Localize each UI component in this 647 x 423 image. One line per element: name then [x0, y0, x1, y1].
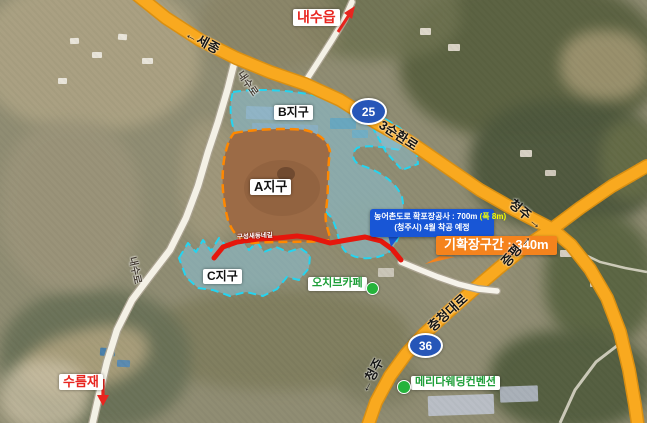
poi-label-merida-wedding: 메리다웨딩컨벤션 [411, 376, 500, 390]
zone-label-c: C지구 [203, 269, 242, 284]
zone-label-b: B지구 [274, 105, 313, 120]
construction-text: 농어촌도로 확포장공사 : 700m [374, 212, 477, 221]
construction-width-note: (폭 8m) [480, 212, 506, 221]
construction-callout-line1: 농어촌도로 확포장공사 : 700m (폭 8m) [374, 212, 490, 223]
poi-label-ochiv-cafe: 오치브카페 [308, 277, 367, 291]
poi-dot-merida-wedding [397, 380, 411, 394]
zone-c-area [179, 237, 310, 296]
road-naesu-ro-casing [92, 56, 236, 423]
widened-section-callout: 기확장구간 : 340m [436, 236, 557, 255]
satellite-map: 내수읍 ←세종 내수로 25 3순환로 B지구 A지구 C지구 구성새동네길 농… [0, 0, 647, 423]
road-minor-bottom-right [560, 345, 618, 423]
poi-dot-ochiv-cafe [366, 282, 379, 295]
construction-callout-line2: (청주시) 4월 착공 예정 [374, 223, 490, 234]
construction-callout: 농어촌도로 확포장공사 : 700m (폭 8m) (청주시) 4월 착공 예정 [370, 209, 494, 237]
map-overlay-svg [0, 0, 647, 423]
road-naesu-ro-path [92, 56, 236, 423]
route-badge-36: 36 [408, 333, 443, 358]
zone-label-a: A지구 [250, 179, 291, 195]
destination-label-naesu-eup: 내수읍 [293, 9, 340, 26]
destination-label-sureumjae: 수름재 [59, 374, 103, 390]
widened-callout-pointer [425, 256, 455, 264]
